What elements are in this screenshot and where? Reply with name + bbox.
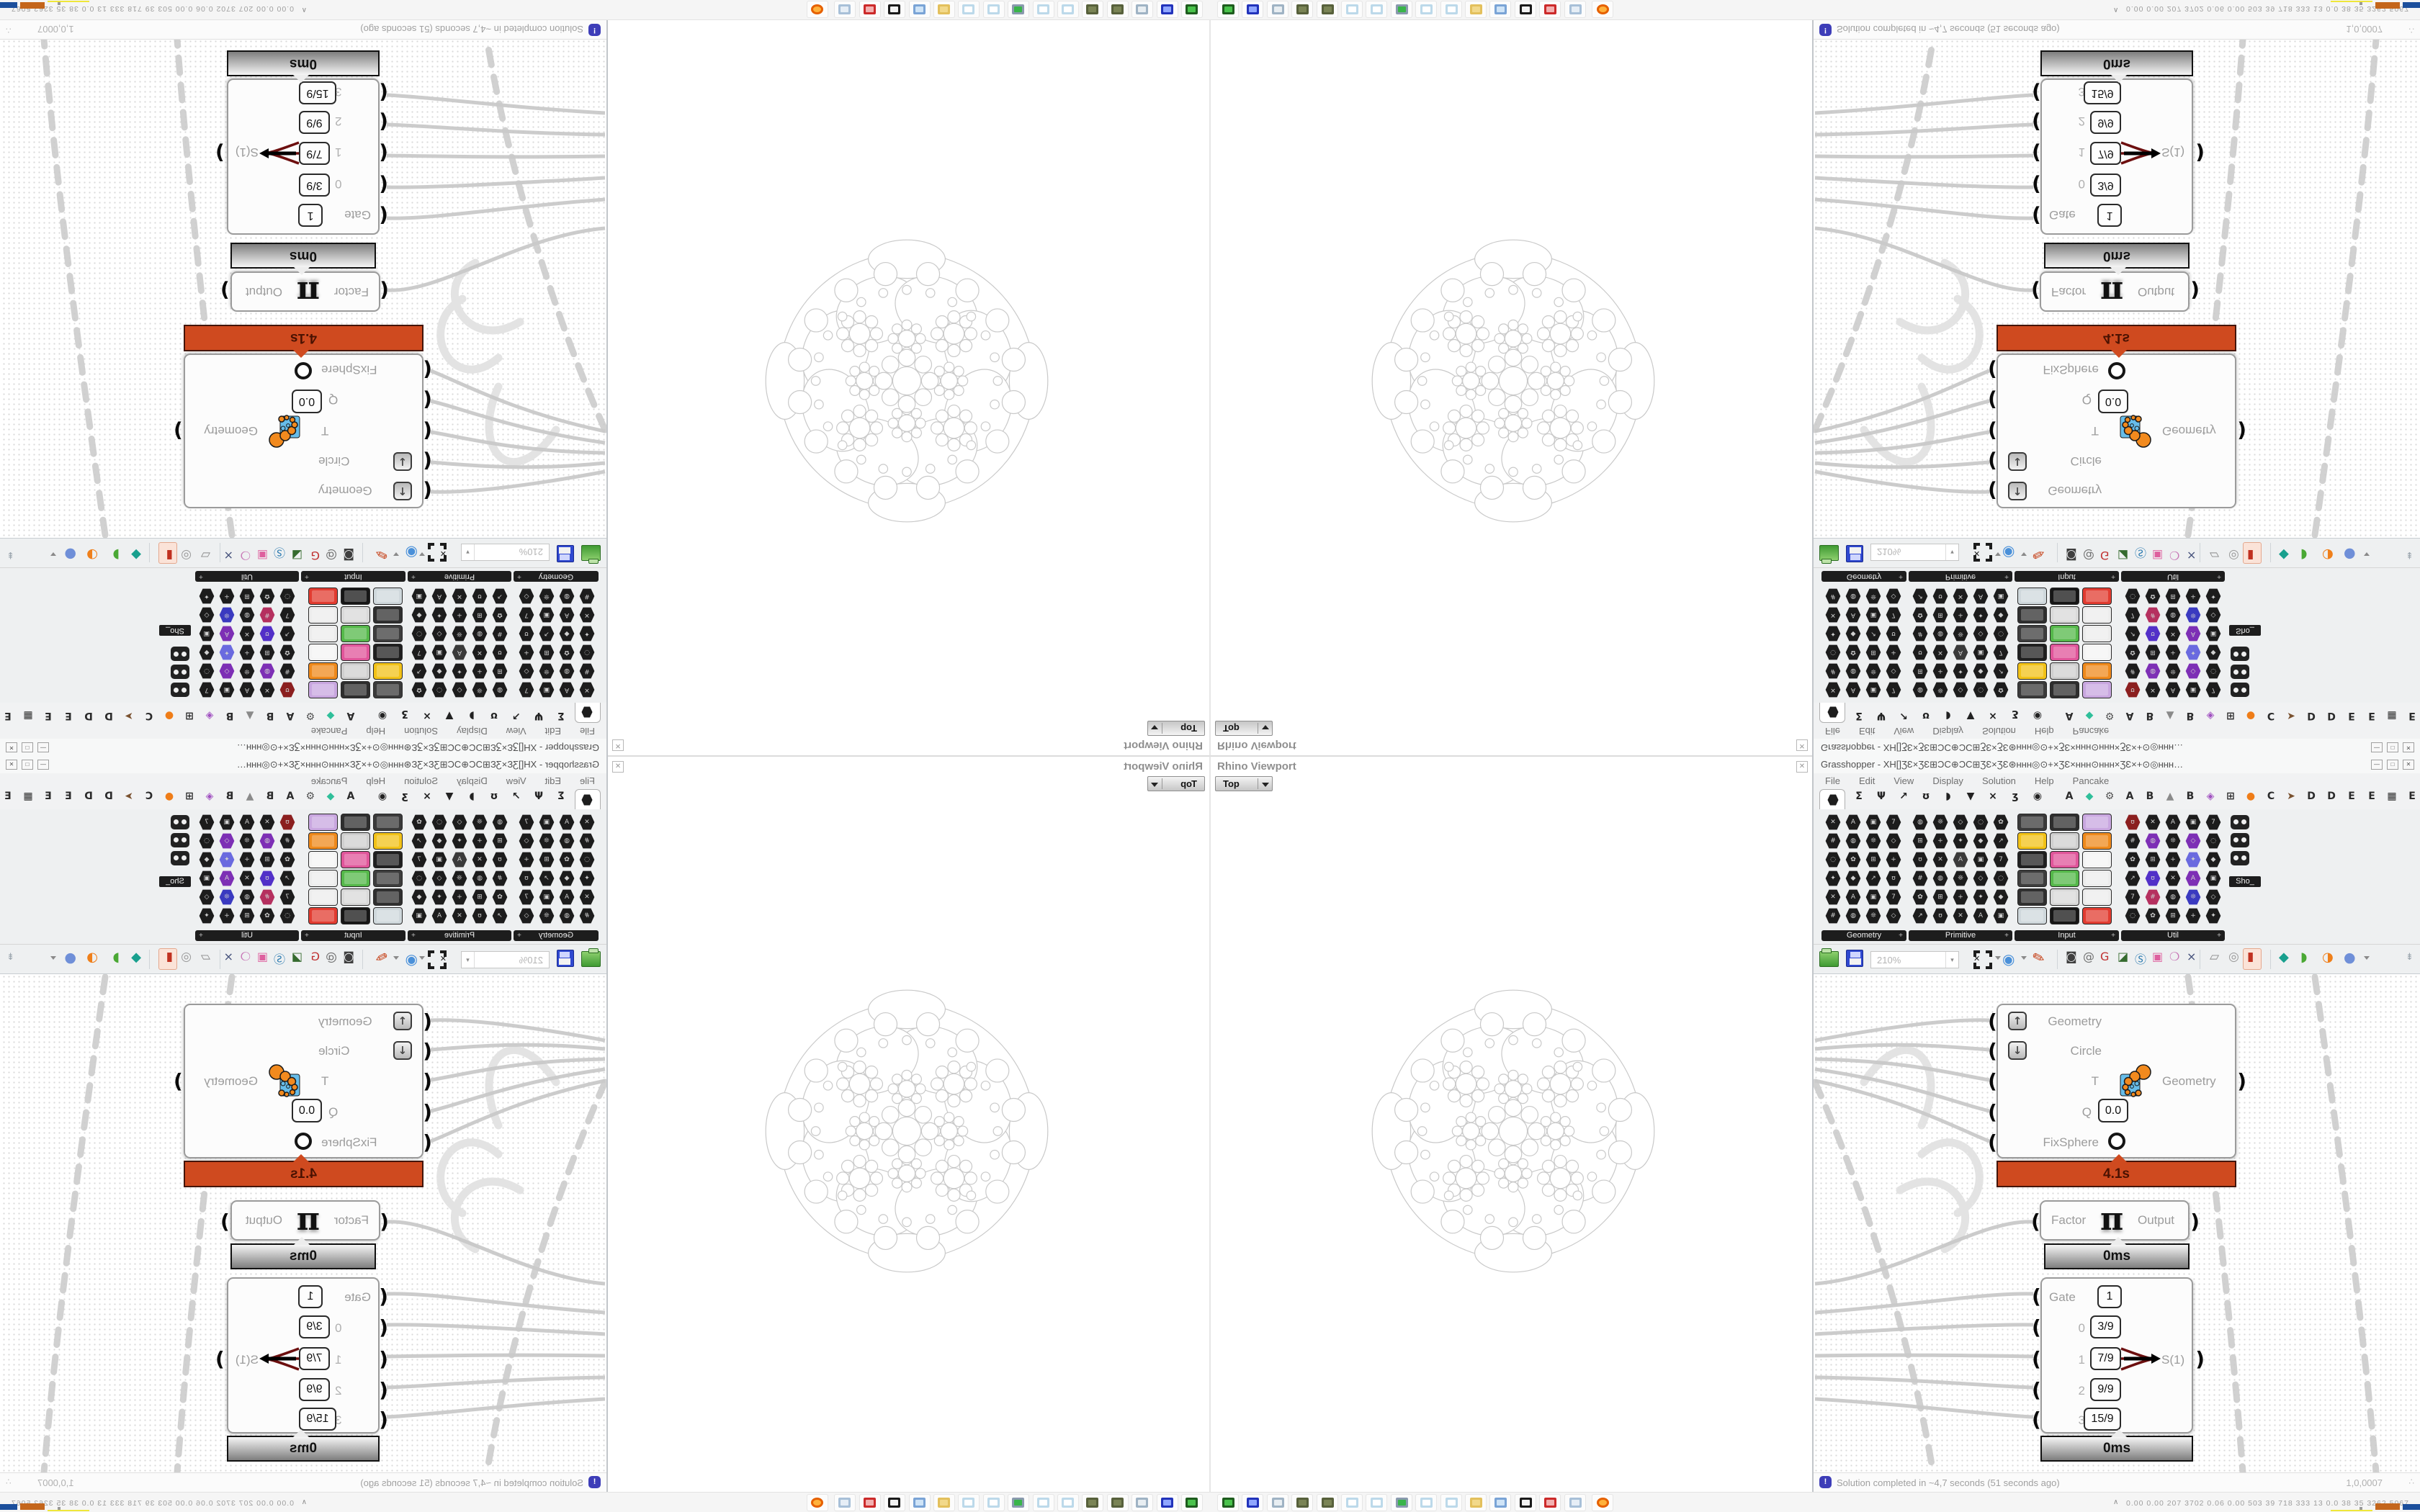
palette-component-icon[interactable]: ✕: [579, 607, 595, 623]
palette-component-icon[interactable]: ◆: [1973, 663, 1989, 679]
input-connector[interactable]: (: [379, 1408, 388, 1431]
tab-item[interactable]: D: [99, 710, 118, 721]
taskbar-app-button[interactable]: [1267, 1, 1289, 18]
palette-component-icon[interactable]: ʊ: [492, 852, 508, 868]
palette-component-icon[interactable]: [2050, 662, 2079, 680]
palette-component-icon[interactable]: 7: [199, 682, 215, 698]
palette-component-icon[interactable]: ✦: [199, 908, 215, 924]
input-connector[interactable]: (: [1988, 1069, 1997, 1093]
palette-component-icon[interactable]: 7: [519, 607, 534, 623]
maximize-button[interactable]: □: [2387, 760, 2398, 770]
grasshopper-canvas[interactable]: ( ( ( ( ( ↑ ↓ Geometry Circle T Q 0.0 Fi…: [1814, 974, 2420, 1472]
palette-component-icon[interactable]: ✿: [279, 644, 295, 660]
palette-component-icon[interactable]: ⊞: [1932, 607, 1948, 623]
palette-component-icon[interactable]: ✦: [1973, 607, 1989, 623]
palette-component-icon[interactable]: ✦: [431, 607, 447, 623]
goggles-icon[interactable]: [171, 833, 189, 847]
palette-component-icon[interactable]: [341, 851, 370, 868]
pi-node[interactable]: ( Factor π Output ): [230, 271, 380, 312]
palette-component-icon[interactable]: ◍: [239, 607, 255, 623]
tab-item[interactable]: ➤: [2282, 791, 2300, 802]
palette-component-icon[interactable]: [2050, 644, 2079, 661]
tab-item[interactable]: E: [39, 791, 58, 802]
palette-component-icon[interactable]: ❊: [1865, 663, 1881, 679]
input-connector[interactable]: (: [423, 449, 432, 473]
taskbar-app-button[interactable]: [1157, 1494, 1178, 1511]
palette-component-icon[interactable]: ✿: [492, 607, 508, 623]
maximize-button[interactable]: □: [22, 742, 33, 752]
palette-component-icon[interactable]: ◆: [411, 889, 427, 905]
palette-component-icon[interactable]: ✦: [199, 588, 215, 604]
palette-component-icon[interactable]: ◍: [559, 663, 575, 679]
palette-component-icon[interactable]: ✕: [1825, 889, 1841, 905]
palette-component-icon[interactable]: +: [2185, 588, 2201, 604]
palette-component-icon[interactable]: ◍: [2145, 833, 2161, 849]
palette-component-icon[interactable]: ◇: [519, 908, 534, 924]
input-connector[interactable]: (: [423, 1130, 432, 1154]
palette-component-icon[interactable]: ◆: [199, 644, 215, 660]
palette-component-icon[interactable]: ⊞: [492, 663, 508, 679]
palette-component-icon[interactable]: +: [239, 644, 255, 660]
series-value-box[interactable]: 7/9: [2090, 142, 2121, 165]
taskbar-app-button[interactable]: [1181, 1494, 1203, 1511]
toolbar-icon[interactable]: ×: [224, 950, 233, 963]
palette-group-label[interactable]: Primitive+: [1909, 930, 2012, 941]
palette-component-icon[interactable]: #: [1825, 663, 1841, 679]
palette-component-icon[interactable]: ◇: [199, 889, 215, 905]
tab-item[interactable]: ʒ: [395, 710, 414, 721]
input-connector[interactable]: (: [379, 173, 388, 197]
palette-component-icon[interactable]: [2017, 681, 2047, 698]
menu-pancake[interactable]: Pancake: [2073, 775, 2110, 786]
palette-component-icon[interactable]: ◇: [1953, 814, 1968, 830]
fixsphere-toggle[interactable]: [295, 362, 312, 379]
palette-component-icon[interactable]: ◌: [1973, 682, 1989, 698]
palette-component-icon[interactable]: ❊: [452, 626, 467, 642]
tab-item[interactable]: ⚙: [301, 710, 320, 721]
palette-component-icon[interactable]: ✕: [1825, 607, 1841, 623]
taskbar-firefox-button[interactable]: [807, 1494, 828, 1511]
pin-tool-icon[interactable]: ◑: [2322, 950, 2334, 965]
input-connector[interactable]: (: [2031, 279, 2040, 302]
palette-component-icon[interactable]: ▣: [411, 588, 427, 604]
palette-component-icon[interactable]: ✕: [472, 852, 488, 868]
tray-expand-icon[interactable]: ∧: [2113, 6, 2118, 14]
palette-component-icon[interactable]: 7: [199, 814, 215, 830]
palette-component-icon[interactable]: ✦: [452, 833, 467, 849]
palette-component-icon[interactable]: ◌: [411, 626, 427, 642]
palette-component-icon[interactable]: ◍: [1932, 626, 1948, 642]
palette-component-icon[interactable]: +: [1953, 607, 1968, 623]
tab-item[interactable]: ▼: [440, 710, 459, 721]
goggles-icon[interactable]: [171, 815, 189, 829]
palette-component-icon[interactable]: ◇: [1886, 908, 1901, 924]
palette-component-icon[interactable]: 7: [1993, 644, 2009, 660]
palette-component-icon[interactable]: ◌: [579, 852, 595, 868]
palette-component-icon[interactable]: A: [431, 588, 447, 604]
palette-component-icon[interactable]: ◍: [2165, 607, 2181, 623]
palette-group-label[interactable]: Input+: [2015, 571, 2119, 582]
tab-item[interactable]: ×: [1984, 710, 2002, 721]
tab-item[interactable]: ◉: [2028, 710, 2047, 721]
palette-component-icon[interactable]: [341, 588, 370, 605]
taskbar-app-button[interactable]: [1489, 1494, 1511, 1511]
output-connector[interactable]: ): [2190, 279, 2200, 302]
minimize-button[interactable]: —: [2371, 760, 2383, 770]
output-connector[interactable]: ): [2195, 1347, 2205, 1371]
pin-tool-icon[interactable]: ◆: [2279, 547, 2289, 562]
palette-expand-icon[interactable]: +: [2004, 930, 2009, 941]
palette-component-icon[interactable]: A: [1845, 607, 1861, 623]
tab-item[interactable]: ◈: [2201, 791, 2220, 802]
toolbar-icon[interactable]: @: [326, 549, 337, 562]
palette-component-icon[interactable]: ◆: [1845, 870, 1861, 886]
taskbar-app-button[interactable]: [933, 1494, 955, 1511]
tab-item[interactable]: Σ: [552, 710, 570, 721]
input-connector[interactable]: (: [1988, 1009, 1997, 1033]
palette-expand-icon[interactable]: +: [517, 930, 521, 941]
palette-component-icon[interactable]: ◍: [1845, 908, 1861, 924]
tab-item[interactable]: D: [2302, 710, 2321, 721]
gate-panel-node[interactable]: ( ( ( ( ( Gate 1 0 3/9 1 7/9 2 9/9 3 15/…: [227, 1277, 380, 1434]
pin-tool-icon[interactable]: ◆: [2279, 950, 2289, 965]
palette-component-icon[interactable]: A: [2185, 626, 2201, 642]
input-connector[interactable]: (: [2032, 1378, 2041, 1402]
taskbar-app-button[interactable]: [1366, 1494, 1387, 1511]
tab-params[interactable]: [575, 789, 601, 809]
tab-item[interactable]: A: [281, 710, 300, 721]
palette-component-icon[interactable]: [2017, 606, 2047, 624]
palette-component-icon[interactable]: ❊: [1865, 833, 1881, 849]
fixsphere-node[interactable]: ( ( ( ( ( ↑ ↓ Geometry Circle T Q 0.0 Fi…: [1996, 1004, 2236, 1158]
palette-component-icon[interactable]: [2082, 870, 2112, 887]
palette-group-label[interactable]: Geometry+: [1821, 571, 1906, 582]
palette-component-icon[interactable]: ▣: [2185, 682, 2201, 698]
palette-component-icon[interactable]: A: [1973, 908, 1989, 924]
palette-component-icon[interactable]: +: [519, 852, 534, 868]
goggles-icon[interactable]: [171, 683, 189, 697]
tab-params[interactable]: [1819, 703, 1845, 723]
palette-component-icon[interactable]: ◇: [1973, 626, 1989, 642]
menu-help[interactable]: Help: [2035, 726, 2054, 737]
palette-component-icon[interactable]: ↗: [279, 870, 295, 886]
palette-component-icon[interactable]: ✦: [1825, 870, 1841, 886]
chevron-down-icon[interactable]: [419, 552, 425, 556]
taskbar-app-button[interactable]: [1515, 1, 1536, 18]
palette-component-icon[interactable]: ◌: [2205, 833, 2221, 849]
palette-component-icon[interactable]: ✿: [411, 814, 427, 830]
series-value-box[interactable]: 15/9: [299, 1408, 336, 1431]
tab-item[interactable]: E: [0, 791, 17, 802]
palette-component-icon[interactable]: ❊: [539, 588, 555, 604]
taskbar-app-button[interactable]: [1415, 1494, 1437, 1511]
palette-component-icon[interactable]: [341, 888, 370, 906]
palette-component-icon[interactable]: A: [559, 682, 575, 698]
taskbar-app-button[interactable]: [983, 1, 1005, 18]
palette-component-icon[interactable]: #: [1825, 908, 1841, 924]
output-connector[interactable]: ): [2190, 1210, 2200, 1233]
palette-component-icon[interactable]: [373, 662, 403, 680]
flatten-up-icon[interactable]: ↑: [393, 1012, 412, 1030]
palette-component-icon[interactable]: ❊: [2185, 889, 2201, 905]
fixsphere-toggle[interactable]: [2108, 1133, 2125, 1150]
palette-component-icon[interactable]: 7: [1886, 607, 1901, 623]
palette-component-icon[interactable]: ◍: [1845, 588, 1861, 604]
output-connector[interactable]: ): [2237, 1069, 2246, 1093]
toolbar-icon[interactable]: Ⓢ: [274, 545, 285, 562]
palette-component-icon[interactable]: ◌: [431, 682, 447, 698]
palette-expand-icon[interactable]: +: [2217, 930, 2221, 941]
palette-mini-label[interactable]: Sho_: [159, 625, 191, 636]
palette-component-icon[interactable]: 7: [1886, 889, 1901, 905]
menu-help[interactable]: Help: [366, 775, 385, 786]
menu-solution[interactable]: Solution: [404, 775, 438, 786]
palette-component-icon[interactable]: [373, 814, 403, 831]
tab-item[interactable]: ×: [418, 791, 436, 802]
toolbar-icon[interactable]: @: [2083, 950, 2094, 963]
palette-component-icon[interactable]: ❊: [239, 663, 255, 679]
palette-component-icon[interactable]: A: [219, 626, 235, 642]
collapse-toolbar-icon[interactable]: ⇟: [2406, 952, 2414, 963]
series-value-box[interactable]: 9/9: [299, 111, 330, 134]
palette-component-icon[interactable]: #: [2145, 607, 2161, 623]
tab-item[interactable]: B: [261, 710, 279, 721]
palette-component-icon[interactable]: [2050, 851, 2079, 868]
palette-component-icon[interactable]: ↗: [1912, 588, 1928, 604]
palette-component-icon[interactable]: A: [2185, 870, 2201, 886]
input-connector[interactable]: (: [1988, 419, 1997, 443]
fixsphere-node[interactable]: ( ( ( ( ( ↑ ↓ Geometry Circle T Q 0.0 Fi…: [184, 354, 423, 508]
open-file-icon[interactable]: [1819, 951, 1839, 967]
toolbar-icon[interactable]: ◪: [2117, 950, 2128, 963]
palette-component-icon[interactable]: ◇: [219, 833, 235, 849]
palette-component-icon[interactable]: ✿: [259, 908, 275, 924]
palette-component-icon[interactable]: ✦: [1825, 626, 1841, 642]
palette-mini-label[interactable]: Sho_: [159, 876, 191, 887]
palette-component-icon[interactable]: ʊ: [259, 626, 275, 642]
tray-expand-icon[interactable]: ∧: [302, 1498, 307, 1506]
input-connector[interactable]: (: [2032, 1408, 2041, 1431]
palette-component-icon[interactable]: ◆: [2205, 644, 2221, 660]
close-button[interactable]: ✕: [2403, 742, 2414, 752]
taskbar-app-button[interactable]: [1008, 1494, 1029, 1511]
palette-component-icon[interactable]: ✕: [259, 682, 275, 698]
palette-component-icon[interactable]: ✦: [219, 644, 235, 660]
palette-component-icon[interactable]: ↗: [492, 908, 508, 924]
palette-component-icon[interactable]: ✕: [259, 814, 275, 830]
tab-item[interactable]: ●: [160, 791, 179, 802]
palette-component-icon[interactable]: ✦: [431, 889, 447, 905]
palette-component-icon[interactable]: ⊞: [239, 588, 255, 604]
input-connector[interactable]: (: [423, 1039, 432, 1063]
palette-component-icon[interactable]: ▣: [2185, 814, 2201, 830]
tab-item[interactable]: ●: [2241, 791, 2260, 802]
palette-component-icon[interactable]: ʊ: [519, 626, 534, 642]
palette-component-icon[interactable]: ʊ: [259, 870, 275, 886]
output-connector[interactable]: ): [220, 279, 230, 302]
input-connector[interactable]: (: [2032, 1315, 2041, 1339]
goggles-icon[interactable]: [2231, 833, 2249, 847]
palette-component-icon[interactable]: ʊ: [1912, 852, 1928, 868]
palette-component-icon[interactable]: ✿: [559, 852, 575, 868]
palette-component-icon[interactable]: ⊞: [2145, 852, 2161, 868]
tab-item[interactable]: ▼: [1961, 710, 1980, 721]
palette-group-label[interactable]: Primitive+: [1909, 571, 2012, 582]
palette-component-icon[interactable]: ❊: [2165, 833, 2181, 849]
sphere-display-icon[interactable]: ●: [64, 950, 76, 966]
tab-item[interactable]: E: [39, 710, 58, 721]
tab-item[interactable]: Σ: [1850, 791, 1868, 802]
taskbar-app-button[interactable]: [1391, 1494, 1412, 1511]
palette-component-icon[interactable]: ◌: [279, 588, 295, 604]
palette-component-icon[interactable]: +: [1886, 644, 1901, 660]
palette-component-icon[interactable]: ◇: [519, 588, 534, 604]
sketch-pen-icon[interactable]: ✎: [373, 544, 390, 564]
palette-component-icon[interactable]: ✿: [2145, 588, 2161, 604]
tab-item[interactable]: B: [220, 791, 239, 802]
palette-component-icon[interactable]: ʊ: [472, 908, 488, 924]
palette-component-icon[interactable]: ❊: [2165, 663, 2181, 679]
palette-component-icon[interactable]: ✿: [2145, 908, 2161, 924]
tab-item[interactable]: ⊞: [180, 791, 199, 802]
palette-component-icon[interactable]: ✕: [579, 814, 595, 830]
palette-component-icon[interactable]: ✕: [1932, 852, 1948, 868]
zoom-level-combo[interactable]: 210% ▾: [461, 951, 550, 968]
toolbar-icon[interactable]: G: [2100, 950, 2109, 963]
taskbar-app-button[interactable]: [1564, 1, 1586, 18]
tab-item[interactable]: Ψ: [529, 791, 548, 802]
palette-component-icon[interactable]: +: [452, 607, 467, 623]
tab-item[interactable]: ×: [1984, 791, 2002, 802]
palette-component-icon[interactable]: [2082, 907, 2112, 924]
palette-component-icon[interactable]: ✕: [452, 908, 467, 924]
palette-component-icon[interactable]: ◇: [1953, 682, 1968, 698]
palette-component-icon[interactable]: ⊞: [1865, 852, 1881, 868]
palette-component-icon[interactable]: ▣: [219, 814, 235, 830]
palette-component-icon[interactable]: ✦: [2185, 852, 2201, 868]
palette-component-icon[interactable]: ↗: [2125, 626, 2141, 642]
taskbar-app-button[interactable]: [1465, 1, 1487, 18]
q-value-box[interactable]: 0.0: [2098, 1099, 2128, 1122]
chevron-down-icon[interactable]: [2021, 552, 2027, 556]
taskbar-app-button[interactable]: [1181, 1, 1203, 18]
palette-component-icon[interactable]: 7: [279, 607, 295, 623]
palette-group-label[interactable]: Input+: [2015, 930, 2119, 941]
menu-file[interactable]: File: [1825, 775, 1840, 786]
palette-group-label[interactable]: Geometry+: [514, 930, 599, 941]
tab-item[interactable]: A: [341, 710, 360, 721]
tab-item[interactable]: ◆: [2080, 710, 2099, 721]
palette-component-icon[interactable]: [341, 870, 370, 887]
goggles-icon[interactable]: [2231, 647, 2249, 661]
menu-solution[interactable]: Solution: [404, 726, 438, 737]
taskbar-app-button[interactable]: [1008, 1, 1029, 18]
grasshopper-titlebar[interactable]: Grasshopper - XH[]ƷƐ×ƷƐ⊞ƆC⊕ƆC⊞ƷƐ×ƷƐ⊛ʜʜʜ◎…: [0, 739, 606, 756]
tab-item[interactable]: E: [2403, 710, 2420, 721]
palette-component-icon[interactable]: ↗: [539, 626, 555, 642]
taskbar-app-button[interactable]: [1317, 1494, 1338, 1511]
palette-component-icon[interactable]: A: [559, 889, 575, 905]
tab-item[interactable]: ◆: [321, 791, 340, 802]
tab-item[interactable]: E: [59, 710, 78, 721]
palette-component-icon[interactable]: ✿: [1845, 644, 1861, 660]
tab-item[interactable]: D: [79, 710, 98, 721]
input-connector[interactable]: (: [2032, 173, 2041, 197]
input-connector[interactable]: (: [423, 358, 432, 382]
palette-component-icon[interactable]: [341, 832, 370, 850]
palette-component-icon[interactable]: ▣: [539, 814, 555, 830]
palette-component-icon[interactable]: ⊞: [539, 644, 555, 660]
tab-item[interactable]: ▲: [2161, 710, 2179, 721]
input-connector[interactable]: (: [1988, 449, 1997, 473]
palette-component-icon[interactable]: ◇: [2205, 607, 2221, 623]
tab-item[interactable]: A: [2120, 791, 2139, 802]
palette-component-icon[interactable]: ◆: [559, 870, 575, 886]
palette-component-icon[interactable]: ◍: [1932, 870, 1948, 886]
palette-component-icon[interactable]: ◇: [431, 626, 447, 642]
pin-tool-icon[interactable]: ◗: [113, 547, 120, 562]
input-connector[interactable]: (: [1988, 388, 1997, 412]
palette-component-icon[interactable]: ❊: [1932, 682, 1948, 698]
input-connector[interactable]: (: [423, 388, 432, 412]
series-value-box[interactable]: 3/9: [2090, 174, 2121, 197]
tab-item[interactable]: D: [99, 791, 118, 802]
taskbar-app-button[interactable]: [1131, 1, 1153, 18]
goggles-icon[interactable]: [2231, 815, 2249, 829]
palette-component-icon[interactable]: ✿: [1993, 682, 2009, 698]
palette-component-icon[interactable]: [2050, 625, 2079, 642]
palette-component-icon[interactable]: #: [1912, 870, 1928, 886]
sphere-display-icon[interactable]: ●: [2344, 950, 2356, 966]
palette-component-icon[interactable]: [341, 681, 370, 698]
palette-component-icon[interactable]: ◆: [1845, 626, 1861, 642]
tab-item[interactable]: ●: [2241, 710, 2260, 721]
palette-component-icon[interactable]: ⊞: [1912, 833, 1928, 849]
palette-component-icon[interactable]: ✦: [1973, 889, 1989, 905]
palette-component-icon[interactable]: ◇: [219, 663, 235, 679]
palette-component-icon[interactable]: ✕: [2145, 814, 2161, 830]
palette-component-icon[interactable]: ✕: [2145, 682, 2161, 698]
pi-node[interactable]: ( Factor π Output ): [2040, 1200, 2190, 1241]
tab-item[interactable]: C: [2262, 791, 2280, 802]
palette-component-icon[interactable]: #: [279, 663, 295, 679]
palette-component-icon[interactable]: A: [452, 852, 467, 868]
toolbar-icon[interactable]: Ⓢ: [2135, 950, 2146, 967]
menu-solution[interactable]: Solution: [1982, 775, 2016, 786]
taskbar-app-button[interactable]: [834, 1494, 856, 1511]
palette-component-icon[interactable]: ◆: [1993, 889, 2009, 905]
tab-item[interactable]: ↗: [1894, 710, 1913, 721]
palette-component-icon[interactable]: ▣: [1993, 588, 2009, 604]
palette-component-icon[interactable]: ⊞: [2145, 644, 2161, 660]
palette-component-icon[interactable]: A: [1953, 644, 1968, 660]
pin-tool-icon[interactable]: ◑: [86, 950, 98, 965]
close-button[interactable]: ✕: [6, 760, 17, 770]
palette-component-icon[interactable]: ◍: [1845, 663, 1861, 679]
gate-value-box[interactable]: 1: [298, 1285, 323, 1308]
palette-component-icon[interactable]: 7: [279, 889, 295, 905]
palette-component-icon[interactable]: 7: [519, 889, 534, 905]
series-value-box[interactable]: 15/9: [299, 81, 336, 104]
input-connector[interactable]: (: [379, 1378, 388, 1402]
palette-component-icon[interactable]: 7: [2125, 607, 2141, 623]
tab-item[interactable]: E: [0, 710, 17, 721]
tab-item[interactable]: E: [2362, 791, 2381, 802]
menu-view[interactable]: View: [1894, 775, 1914, 786]
input-connector[interactable]: (: [379, 1284, 388, 1308]
palette-component-icon[interactable]: ◌: [1825, 852, 1841, 868]
series-value-box[interactable]: 9/9: [2090, 111, 2121, 134]
